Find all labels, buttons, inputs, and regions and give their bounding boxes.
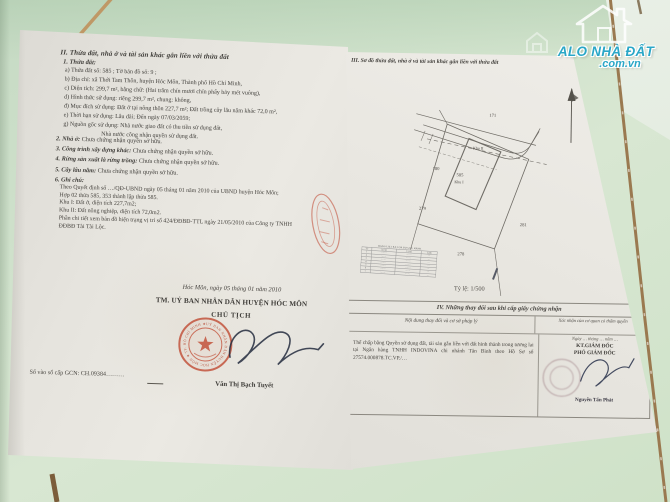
item-text: Chưa chứng nhận quyền sở hữu. [80,136,162,145]
left-page-content: II. Thửa đất, nhà ở và tài sản khác gắn … [0,27,355,484]
mortgage-entry: Thế chấp bằng Quyền sử dụng đất, tài sản… [346,332,539,417]
parcel-number-label: 585 [456,172,464,177]
chairman-signature [223,317,329,378]
section2-item1-label: 1. Thửa đất: [63,58,96,66]
photo-of-land-certificate: II. Thửa đất, nhà ở và tài sản khác gắn … [0,0,670,502]
item-label: 5. Cây lâu năm: [55,166,96,174]
section4-table: IV. Những thay đổi sau khi cấp giấy chứn… [345,300,652,419]
item-label: 2. Nhà ở: [56,135,80,143]
section3-heading: III. Sơ đồ thửa đất, nhà ở và tài sản kh… [351,58,498,66]
item-text: Chưa chứng nhận quyền sở hữu. [96,167,178,176]
neighbor-parcel-171: 171 [489,113,497,118]
alonhadat-watermark: ALO NHÀ ĐẤT .com.vn [542,2,670,70]
parcel-detail-lines: a) Thửa đất số: 585 ; Tờ bản đồ số: 9 ; … [63,66,347,146]
bank-round-stamp [543,359,582,398]
neighbor-parcel-279: 279 [419,206,427,211]
section4-body: Thế chấp bằng Quyền sử dụng đất, tài sản… [346,332,650,418]
house-watermark-icon [573,2,639,44]
confirmation-date: Ngày … tháng … năm … [540,335,651,342]
item-label: 3. Công trình xây dựng khác: [56,145,132,154]
photo-vignette [0,0,10,502]
item-label: 4. Rừng sản xuất là rừng trồng: [55,156,137,165]
zone1-label: Khu I [454,179,464,184]
neighbor-parcel-281: 281 [520,222,528,227]
confirmation-cell: Ngày … tháng … năm … KT.GIÁM ĐỐC PHÓ GIÁ… [538,334,651,418]
deputy-director-signature [577,349,638,392]
neighbor-parcel-278: 278 [457,251,465,256]
coord-table-body: 1·················2·················3···… [360,250,437,277]
section4-col1-header: Nội dung thay đổi và cơ sở pháp lý [347,314,534,334]
item-text: Chưa chứng nhận quyền sở hữu. [137,158,219,167]
map-scale: Tỷ lệ: 1/500 [454,285,485,292]
item-label: 6. Ghi chú: [55,176,84,184]
zone2-label: Khu II [473,146,484,151]
partial-oval-stamp [295,185,343,262]
certificate-book-number: Số vào sổ cấp GCN: CH.09384……… [29,370,124,379]
item-text: Chưa chứng nhận quyền sở hữu. [131,148,213,157]
neighbor-parcel-180: 180 [433,166,441,171]
watermark-domain-text: .com.vn [542,58,670,70]
certificate-left-page: II. Thửa đất, nhà ở và tài sản khác gắn … [8,28,354,476]
watermark-brand-text: ALO NHÀ ĐẤT [542,44,670,59]
coordinate-table: BẢNG LIỆT KÊ TỌA ĐỘ GÓC RANH TT X (m) Y … [359,244,438,299]
chairman-name: Văn Thị Bạch Tuyết [154,379,334,391]
deputy-director-name: Nguyễn Tấn Phát [539,396,650,404]
north-arrow [567,88,579,143]
